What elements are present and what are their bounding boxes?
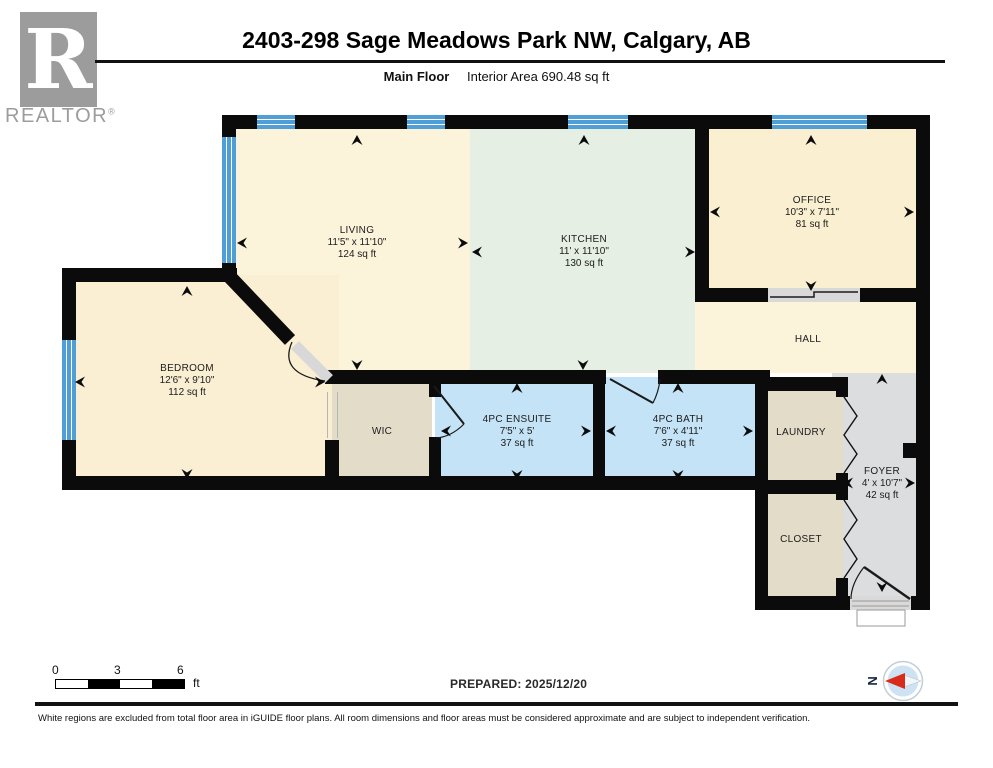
scale-tick: 3 — [114, 663, 121, 677]
floor-subtitle: Main Floor Interior Area 690.48 sq ft — [0, 69, 993, 84]
scale-segment — [56, 680, 88, 688]
office-door-opening — [768, 288, 860, 302]
room-label-kitchen: KITCHEN 11' x 11'10" 130 sq ft — [559, 234, 609, 270]
wall — [429, 370, 441, 397]
room-label-laundry: LAUNDRY — [776, 427, 826, 439]
footer-divider — [35, 702, 958, 706]
wall — [62, 268, 237, 282]
room-label-closet: CLOSET — [780, 534, 822, 546]
wall — [695, 288, 768, 302]
wall — [658, 370, 770, 384]
wic-door-jamb — [327, 392, 328, 438]
wall — [325, 440, 339, 490]
window — [568, 115, 628, 129]
wall-jog — [903, 443, 916, 458]
scale-segment — [88, 680, 120, 688]
wall — [755, 596, 850, 610]
compass-north-letter: N — [865, 676, 880, 685]
floorplan-page: R REALTOR® 2403-298 Sage Meadows Park NW… — [0, 0, 993, 768]
scale-segment — [152, 680, 184, 688]
window — [772, 115, 867, 129]
title-divider — [95, 60, 945, 63]
wall — [860, 288, 930, 302]
floor-name: Main Floor — [384, 69, 450, 84]
scale-bar: 0 3 6 ft — [55, 663, 265, 695]
room-label-hall: HALL — [795, 334, 821, 346]
window — [407, 115, 445, 129]
room-label-foyer: FOYER 4' x 10'7" 42 sq ft — [862, 466, 902, 502]
wall — [429, 437, 441, 490]
registered-mark: ® — [108, 106, 116, 116]
interior-area: Interior Area 690.48 sq ft — [467, 69, 609, 84]
window — [222, 137, 236, 263]
wall — [836, 473, 848, 500]
wall — [325, 370, 606, 384]
room-label-ensuite: 4PC ENSUITE 7'5" x 5' 37 sq ft — [483, 414, 552, 450]
room-label-bedroom: BEDROOM 12'6" x 9'10" 112 sq ft — [160, 363, 215, 399]
room-label-office: OFFICE 10'3" x 7'11" 81 sq ft — [785, 195, 839, 231]
wall — [911, 596, 930, 610]
scale-bar-segments — [55, 679, 185, 689]
prepared-date: PREPARED: 2025/12/20 — [450, 677, 587, 691]
entry-door-opening — [850, 596, 911, 610]
wall — [836, 377, 848, 397]
window — [62, 340, 76, 440]
scale-tick: 0 — [52, 663, 59, 677]
room-label-living: LIVING 11'5" x 11'10" 124 sq ft — [328, 225, 387, 261]
window — [257, 115, 295, 129]
room-label-wic: WIC — [372, 426, 392, 438]
realtor-logo-text: REALTOR® — [5, 105, 116, 128]
wall — [916, 115, 930, 610]
scale-unit: ft — [193, 676, 200, 690]
disclaimer-text: White regions are excluded from total fl… — [38, 713, 810, 724]
scale-tick: 6 — [177, 663, 184, 677]
wic-door-jamb — [337, 392, 338, 438]
scale-segment — [120, 680, 152, 688]
wall — [62, 476, 768, 490]
wall — [593, 370, 605, 490]
wall — [695, 115, 709, 302]
page-title: 2403-298 Sage Meadows Park NW, Calgary, … — [0, 27, 993, 54]
room-label-bath: 4PC BATH 7'6" x 4'11" 37 sq ft — [653, 414, 704, 450]
